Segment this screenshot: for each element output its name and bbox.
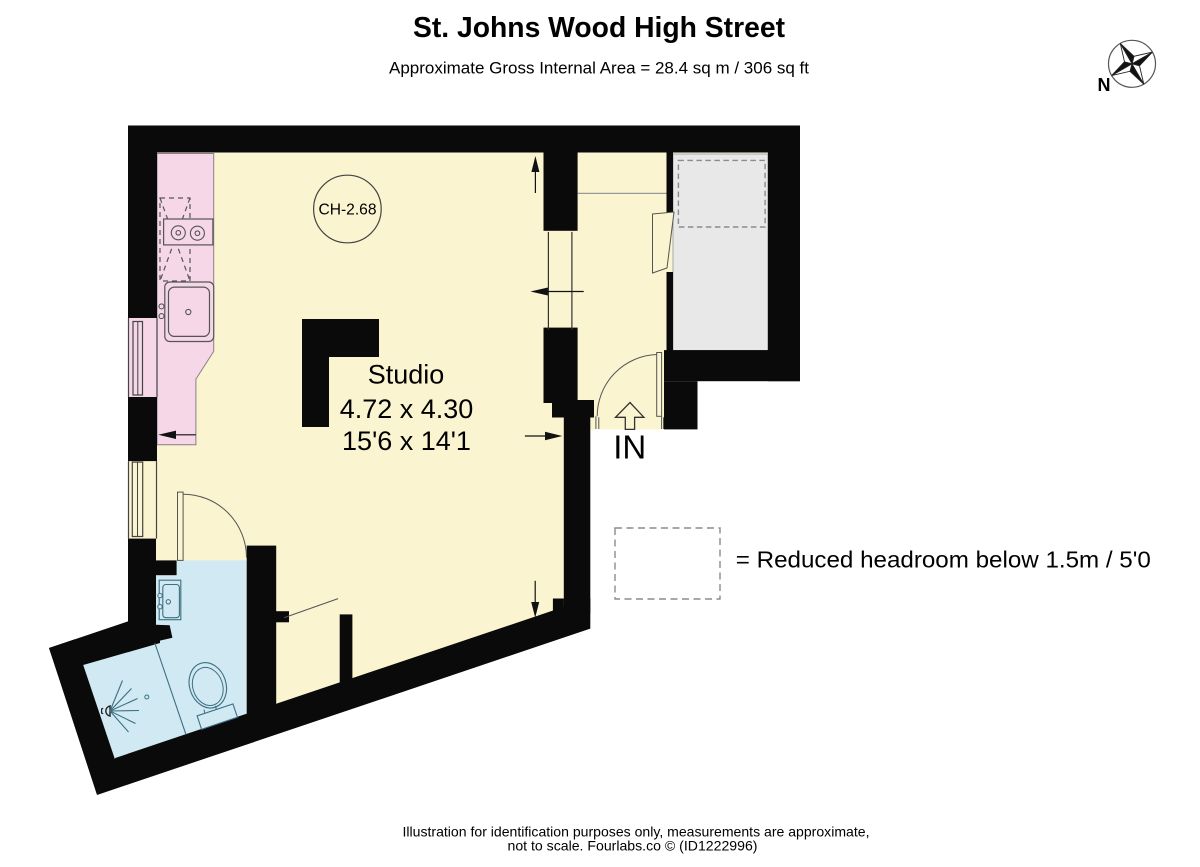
svg-text:N: N <box>1098 75 1111 95</box>
svg-text:CH-2.68: CH-2.68 <box>318 202 376 219</box>
svg-text:15'6 x 14'1: 15'6 x 14'1 <box>342 426 471 456</box>
svg-text:4.72 x 4.30: 4.72 x 4.30 <box>340 394 474 424</box>
svg-text:Approximate Gross Internal Are: Approximate Gross Internal Area = 28.4 s… <box>389 59 809 78</box>
svg-text:IN: IN <box>613 429 646 466</box>
svg-text:= Reduced headroom below 1.5m: = Reduced headroom below 1.5m / 5'0 <box>736 547 1151 573</box>
svg-text:Studio: Studio <box>368 360 445 390</box>
svg-text:St. Johns Wood High Street: St. Johns Wood High Street <box>413 12 785 44</box>
svg-text:not to scale. Fourlabs.co © (I: not to scale. Fourlabs.co © (ID1222996) <box>508 837 758 853</box>
